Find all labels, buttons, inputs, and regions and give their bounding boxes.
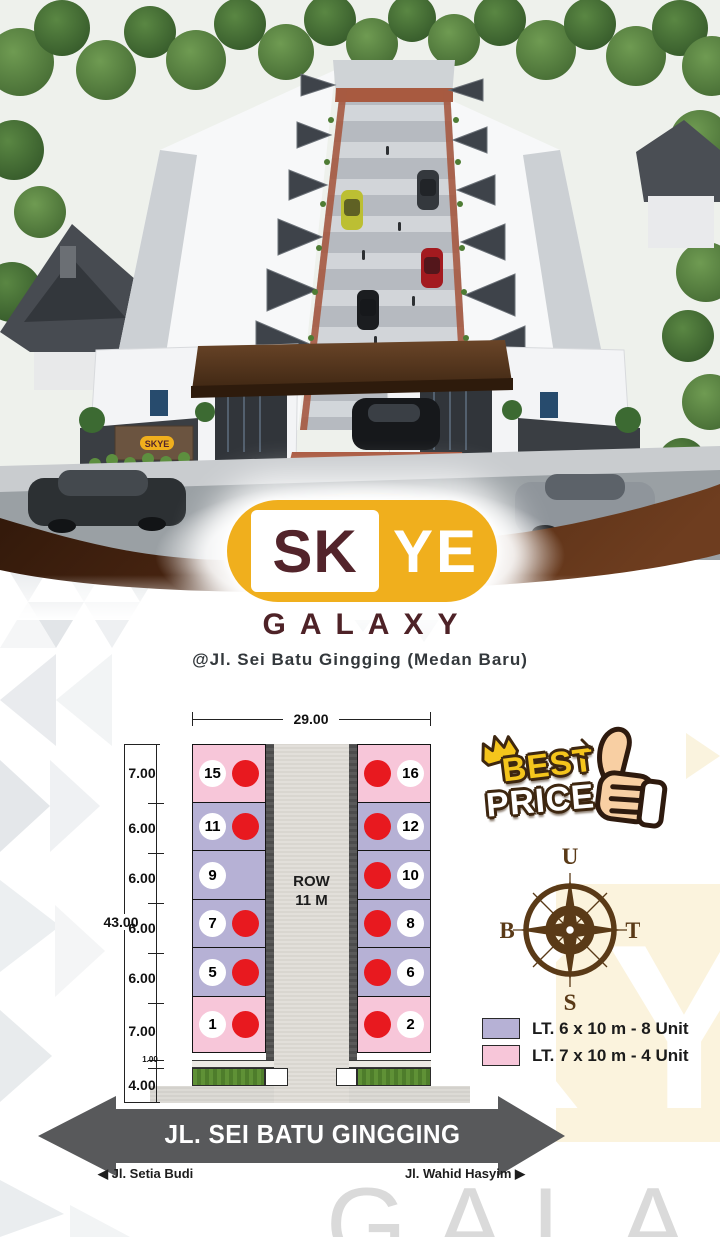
real-estate-flyer: KY GALA (0, 0, 720, 1237)
legend: LT. 6 x 10 m - 8 Unit LT. 7 x 10 m - 4 U… (482, 1018, 689, 1072)
dim-row-2: 6.00 (118, 820, 166, 836)
lot-number: 1 (199, 1011, 226, 1038)
sold-dot (364, 1011, 391, 1038)
compass-south: S (564, 990, 577, 1014)
lot-12: 12 (357, 802, 431, 852)
sold-dot (364, 910, 391, 937)
lot-16: 16 (357, 744, 431, 803)
grass-strip-right (357, 1068, 431, 1086)
road-width-label: ROW 11 M (274, 872, 349, 910)
lot-number: 5 (199, 959, 226, 986)
black-car-road (357, 290, 379, 330)
compass-west: B (500, 918, 515, 943)
sold-dot (364, 760, 391, 787)
lot-1: 1 (192, 996, 266, 1053)
legend-item-7x10: LT. 7 x 10 m - 4 Unit (482, 1045, 689, 1066)
lot-number: 8 (397, 910, 424, 937)
site-plan-road (274, 744, 349, 1103)
lot-column-left: 15 11 9 7 5 1 (192, 744, 266, 1053)
legend-swatch-pink (482, 1045, 520, 1066)
dim-row-6: 7.00 (118, 1023, 166, 1039)
lot-2: 2 (357, 996, 431, 1053)
compass-north: U (562, 844, 579, 869)
lot-5: 5 (192, 947, 266, 997)
sold-dot (232, 1011, 259, 1038)
thumbs-up-icon (574, 722, 674, 837)
gate-post-right (336, 1068, 357, 1086)
legend-swatch-lavender (482, 1018, 520, 1039)
sold-dot (232, 910, 259, 937)
lot-number: 12 (397, 813, 424, 840)
yellow-car (341, 190, 363, 230)
lot-6: 6 (357, 947, 431, 997)
wall-left (266, 744, 274, 1060)
grass-strip-left (192, 1068, 265, 1086)
sold-dot (232, 760, 259, 787)
brand-logo-ye: YE (383, 510, 489, 592)
brand-logo: SK YE (227, 500, 497, 602)
dim-row-4: 6.00 (118, 920, 166, 936)
cross-street-left: ◀ Jl. Setia Budi (98, 1166, 218, 1182)
dim-total-width: 29.00 (283, 711, 339, 727)
wall-right (349, 744, 357, 1060)
compass-rose: U S B T (500, 842, 640, 1014)
lot-number: 9 (199, 862, 226, 889)
street-banner-label: JL. SEI BATU GINGGING (127, 1119, 498, 1150)
sold-dot (364, 959, 391, 986)
lot-column-right: 16 12 10 8 6 2 (357, 744, 431, 1053)
gate-sign-text: SKYE (145, 439, 170, 449)
sold-dot (364, 862, 391, 889)
lot-number: 10 (397, 862, 424, 889)
lot-10: 10 (357, 850, 431, 900)
dim-front-road: 4.00 (118, 1077, 166, 1093)
cross-street-right: Jl. Wahid Hasyim ▶ (400, 1166, 525, 1182)
project-address: @Jl. Sei Batu Gingging (Medan Baru) (80, 650, 640, 670)
brand-subtitle: GALAXY (180, 608, 540, 642)
left-arrow-icon: ◀ (98, 1166, 112, 1181)
gray-car-road (417, 170, 439, 210)
gate-post-left (265, 1068, 288, 1086)
lot-number: 2 (397, 1011, 424, 1038)
red-car (421, 248, 443, 288)
sold-dot (232, 959, 259, 986)
lot-number: 7 (199, 910, 226, 937)
lot-8: 8 (357, 899, 431, 949)
dim-row-3: 6.00 (118, 870, 166, 886)
best-price-badge: BEST PRICE (462, 722, 677, 840)
sold-dot (364, 813, 391, 840)
dim-row-5: 6.00 (118, 970, 166, 986)
lot-9: 9 (192, 850, 266, 900)
lot-number: 15 (199, 760, 226, 787)
compass-east: T (625, 918, 640, 943)
brand-logo-sk: SK (251, 510, 379, 592)
lot-number: 6 (397, 959, 424, 986)
lot-7: 7 (192, 899, 266, 949)
dim-row-1: 7.00 (118, 765, 166, 781)
sold-dot (232, 813, 259, 840)
legend-item-6x10: LT. 6 x 10 m - 8 Unit (482, 1018, 689, 1039)
dim-setback: 1.00 (134, 1055, 166, 1064)
right-arrow-icon: ▶ (511, 1166, 525, 1181)
lot-11: 11 (192, 802, 266, 852)
lot-number: 11 (199, 813, 226, 840)
lot-number: 16 (397, 760, 424, 787)
setback-strip (192, 1060, 274, 1068)
lot-15: 15 (192, 744, 266, 803)
